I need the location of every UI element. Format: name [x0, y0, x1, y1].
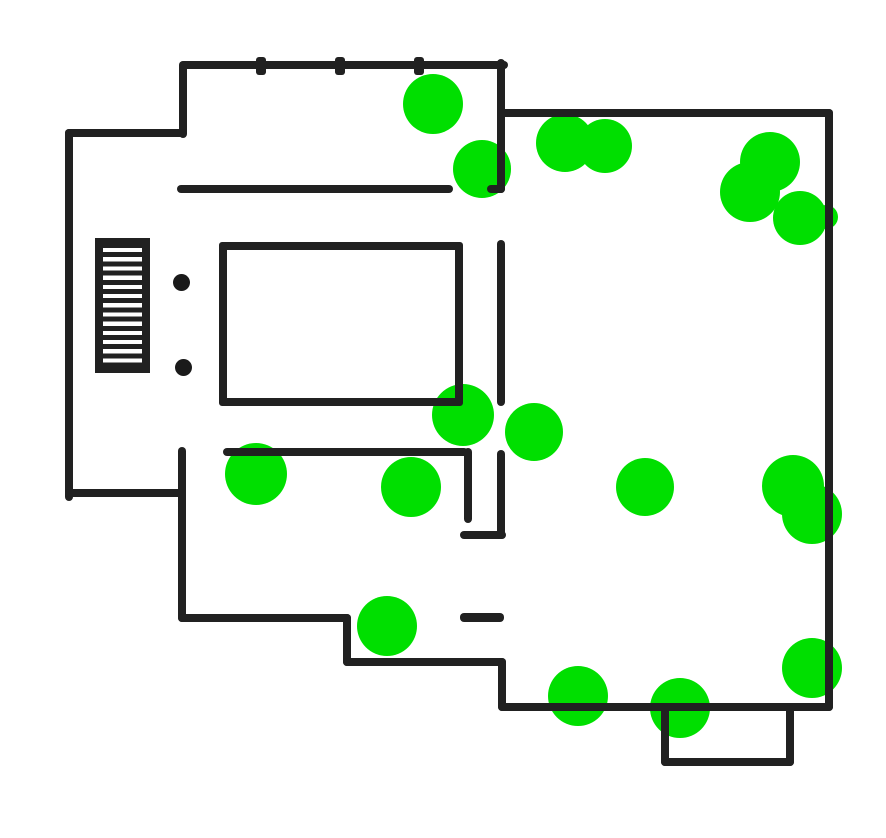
green-dot-marker	[578, 119, 632, 173]
wall-center-vertical-foot	[487, 185, 505, 193]
bed-rectangle	[219, 242, 463, 406]
wall-bottom-wall-1	[178, 614, 351, 622]
staircase	[95, 238, 150, 373]
wall-interior-left-vertical	[178, 447, 186, 622]
wall-upper-left-horizontal	[65, 129, 186, 137]
green-dot-marker	[403, 74, 463, 134]
wall-mid-left-horizontal	[65, 489, 186, 497]
wall-bottom-wall-2	[343, 658, 506, 666]
wall-hall-horizontal	[177, 185, 453, 193]
window-tick-2	[335, 57, 345, 75]
door-pivot-1	[173, 274, 190, 291]
green-dot-marker	[381, 457, 441, 517]
wall-entry-stub-left	[179, 61, 187, 138]
window-tick-3	[414, 57, 424, 75]
window-tick-1	[256, 57, 266, 75]
green-dot-marker	[505, 403, 563, 461]
wall-top-right-horizontal	[501, 109, 833, 117]
wall-closet-right-wall	[497, 450, 505, 539]
wall-half-wall-fragment	[460, 613, 504, 622]
wall-bedroom-bottom-wall	[223, 448, 468, 456]
green-dot-marker	[357, 596, 417, 656]
wall-bay-left	[661, 705, 669, 766]
wall-right-wall	[825, 109, 833, 711]
green-dot-marker	[782, 484, 842, 544]
door-pivot-2	[175, 359, 192, 376]
wall-center-vertical-upper	[497, 59, 505, 193]
green-dot-marker	[548, 666, 608, 726]
wall-left-wall	[65, 129, 73, 501]
green-dot-marker	[720, 162, 780, 222]
wall-center-vertical-mid	[497, 240, 505, 406]
floor-plan	[0, 0, 886, 838]
wall-bay-right	[786, 705, 794, 766]
wall-closet-inner-wall	[464, 448, 472, 523]
green-dot-marker	[616, 458, 674, 516]
green-dot-marker	[782, 638, 842, 698]
wall-bay-bottom	[661, 758, 794, 766]
